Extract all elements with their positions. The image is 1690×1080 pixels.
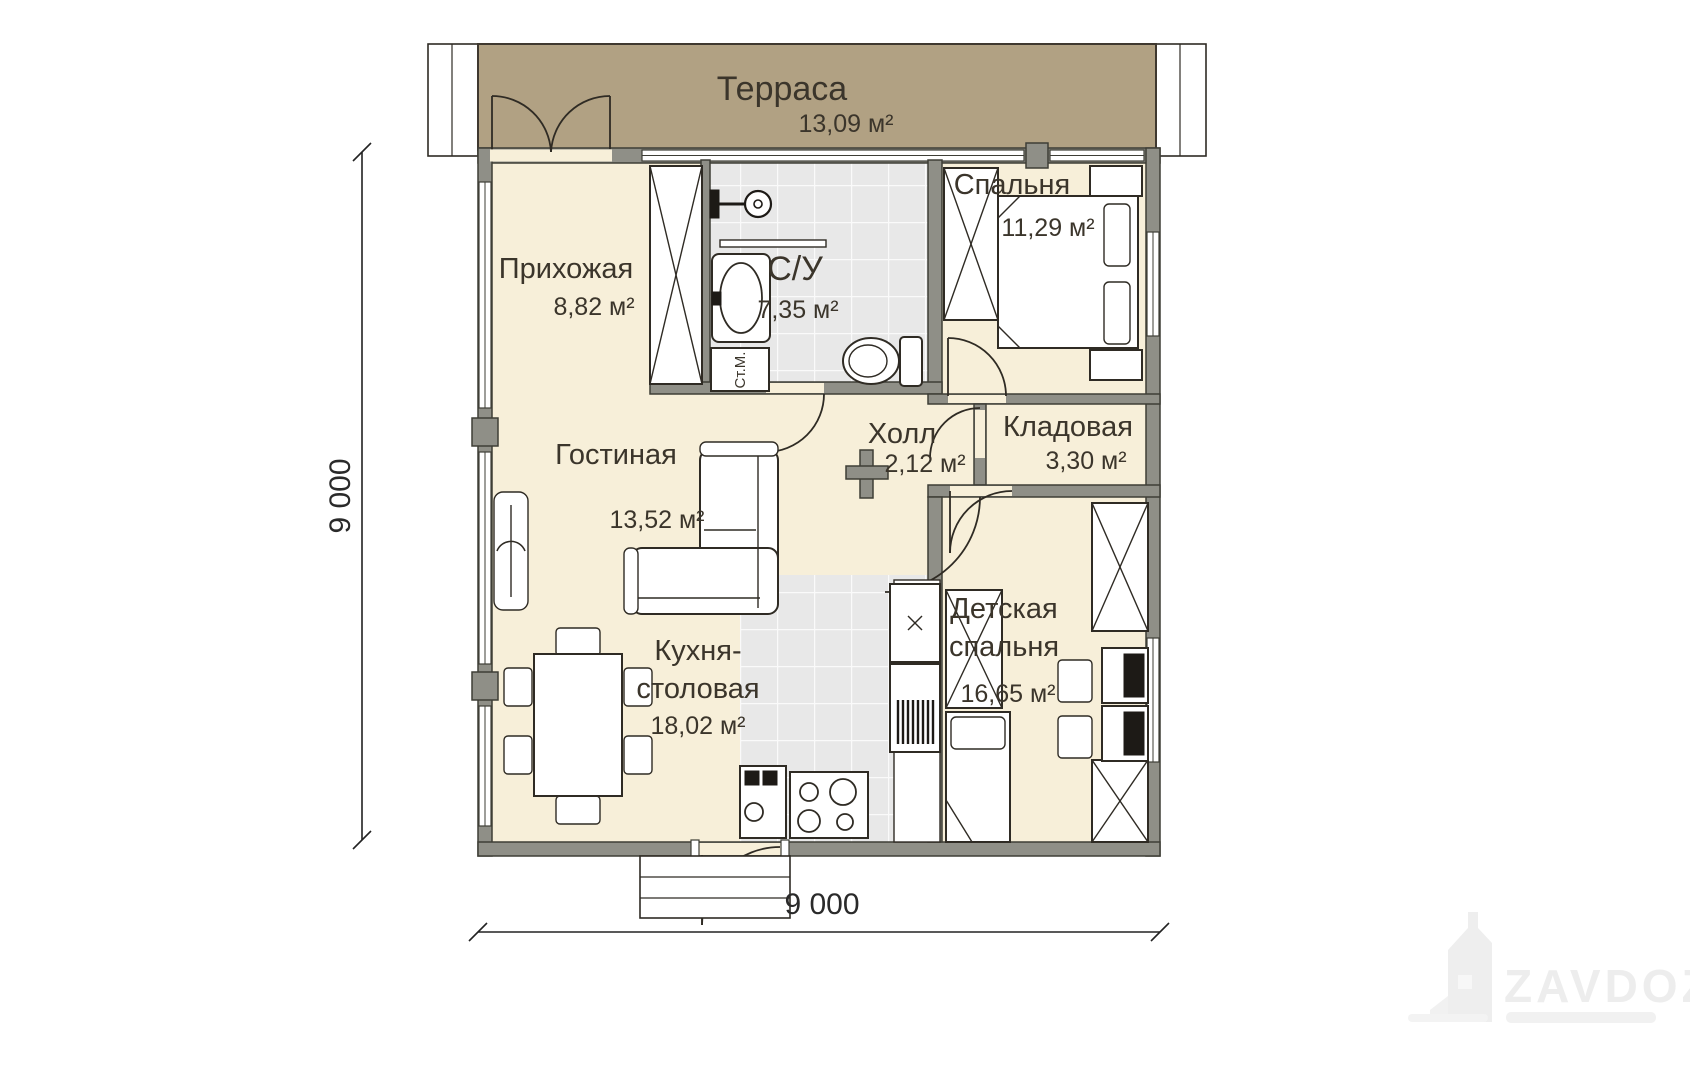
bathroom-shelf [720, 240, 826, 247]
watermark-text: ZAVDOZ [1504, 960, 1690, 1012]
watermark-subtitle-blur [1408, 1014, 1488, 1022]
entrance-door-opening [698, 843, 782, 855]
window-right-bedroom [1147, 232, 1159, 336]
chair [504, 736, 532, 774]
kids-wardrobe-bottom [1092, 760, 1148, 842]
wall-connector [1026, 143, 1048, 168]
chair [504, 668, 532, 706]
oven-unit [740, 766, 786, 838]
area-bathroom: 7,35 м² [757, 296, 838, 324]
area-living: 13,52 м² [609, 506, 704, 534]
entrance-steps [640, 856, 790, 918]
area-hallway: 8,82 м² [553, 293, 634, 321]
washing-machine: Ст.М. [711, 348, 769, 391]
hallway-wardrobe [650, 166, 702, 384]
wall-connector [472, 672, 498, 700]
chair [624, 736, 652, 774]
chair [556, 628, 600, 656]
toilet [843, 337, 922, 386]
window-left-1 [479, 182, 491, 408]
label-kitchen-2: столовая [636, 673, 759, 705]
area-kids: 16,65 м² [960, 680, 1055, 708]
kids-chair [1058, 660, 1092, 702]
label-kids-2: спальня [949, 631, 1059, 663]
area-terrace: 13,09 м² [798, 110, 893, 138]
chair [556, 796, 600, 824]
nightstand [1090, 166, 1142, 196]
area-kitchen: 18,02 м² [650, 712, 745, 740]
label-bathroom: С/У [767, 250, 823, 288]
kids-chair [1058, 716, 1092, 758]
floor-plan-page: Ст.М. [0, 0, 1690, 1080]
area-storage: 3,30 м² [1045, 447, 1126, 475]
dimension-bottom: 9 000 [469, 888, 1169, 941]
label-storage: Кладовая [1003, 411, 1133, 443]
area-hall: 2,12 м² [884, 450, 965, 478]
floor-plan-canvas: Ст.М. [0, 0, 1690, 1080]
label-bedroom: Спальня [954, 169, 1071, 201]
kids-bed [946, 712, 1010, 842]
dimension-left: 9 000 [324, 143, 371, 849]
wall-connector [472, 418, 498, 446]
window-top-1 [642, 150, 1024, 161]
kids-desk [1102, 706, 1148, 761]
label-living: Гостиная [555, 439, 677, 471]
label-hallway: Прихожая [499, 253, 633, 285]
terrace-step-right [1156, 44, 1206, 156]
dimension-height-label: 9 000 [324, 458, 357, 533]
watermark: ZAVDOZ [1408, 912, 1690, 1023]
tv-stand [494, 492, 528, 610]
window-left-3 [479, 706, 491, 826]
label-hall: Холл [868, 418, 936, 450]
label-kitchen-1: Кухня- [654, 635, 741, 667]
kids-desk [1102, 648, 1148, 703]
watermark-house-icon [1430, 912, 1492, 1022]
dimension-width-label: 9 000 [784, 888, 859, 921]
cooktop [790, 772, 868, 838]
kids-wardrobe-top [1092, 503, 1148, 631]
watermark-subtitle-blur [1506, 1012, 1656, 1023]
window-left-2 [479, 452, 491, 664]
area-bedroom: 11,29 м² [1001, 214, 1094, 242]
washing-machine-label: Ст.М. [732, 352, 749, 389]
nightstand [1090, 350, 1142, 380]
kitchen-counter [890, 580, 940, 842]
window-top-2 [1050, 150, 1144, 161]
terrace-step-left [428, 44, 478, 156]
label-terrace: Терраса [717, 70, 847, 108]
label-kids-1: Детская [950, 593, 1057, 625]
